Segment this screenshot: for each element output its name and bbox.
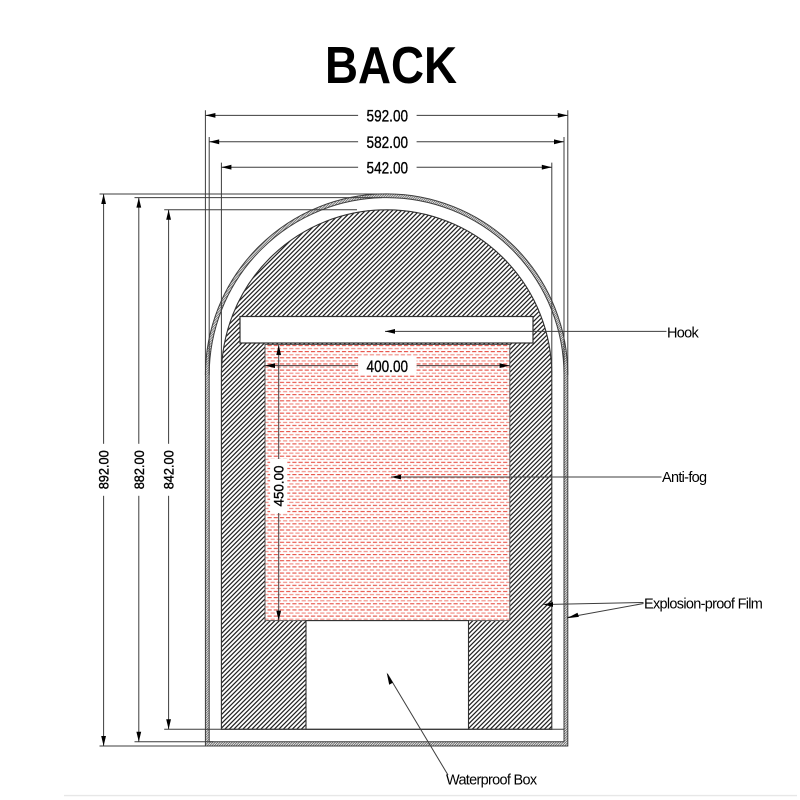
svg-text:842.00: 842.00 (161, 450, 177, 489)
svg-text:Anti-fog: Anti-fog (662, 470, 707, 486)
svg-text:892.00: 892.00 (96, 450, 112, 489)
svg-text:542.00: 542.00 (367, 158, 409, 177)
svg-text:Hook: Hook (667, 326, 699, 342)
svg-text:Explosion-proof Film: Explosion-proof Film (644, 597, 763, 613)
svg-text:450.00: 450.00 (271, 465, 287, 506)
svg-text:BACK: BACK (325, 37, 457, 95)
svg-text:582.00: 582.00 (367, 133, 409, 152)
svg-text:592.00: 592.00 (367, 107, 409, 126)
svg-text:Waterproof Box: Waterproof Box (446, 773, 538, 789)
svg-text:882.00: 882.00 (131, 450, 147, 489)
svg-text:400.00: 400.00 (367, 357, 409, 376)
